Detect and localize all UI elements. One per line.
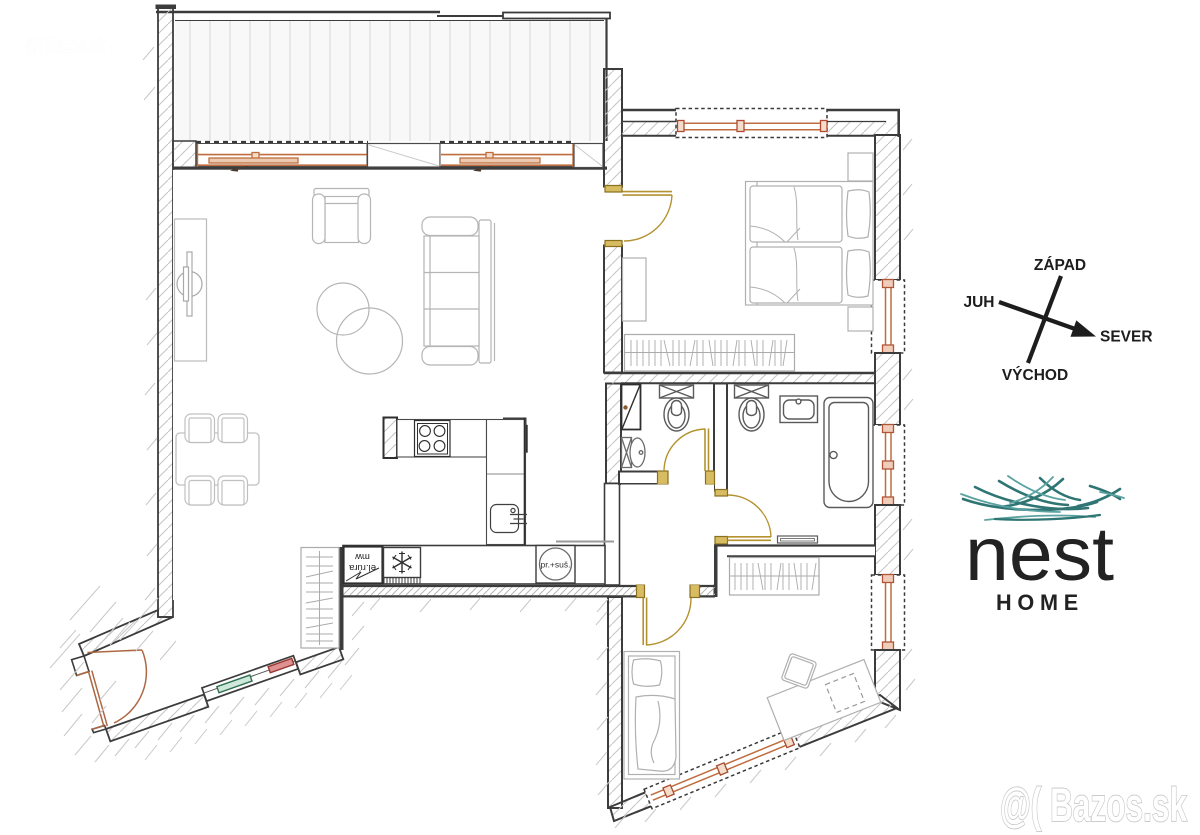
svg-text:JUH: JUH: [963, 294, 994, 311]
svg-text:@( Bazos.sk: @( Bazos.sk: [25, 35, 106, 57]
svg-text:mw: mw: [355, 551, 370, 562]
svg-text:@( Bazos.sk: @( Bazos.sk: [1000, 778, 1188, 831]
svg-text:VÝCHOD: VÝCHOD: [1002, 366, 1068, 384]
svg-text:ZÁPAD: ZÁPAD: [1034, 257, 1086, 274]
svg-text:HOME: HOME: [996, 590, 1084, 615]
svg-text:pr.+suš.: pr.+suš.: [540, 560, 570, 570]
svg-text:nest: nest: [965, 512, 1114, 597]
svg-text:SEVER: SEVER: [1100, 329, 1153, 346]
